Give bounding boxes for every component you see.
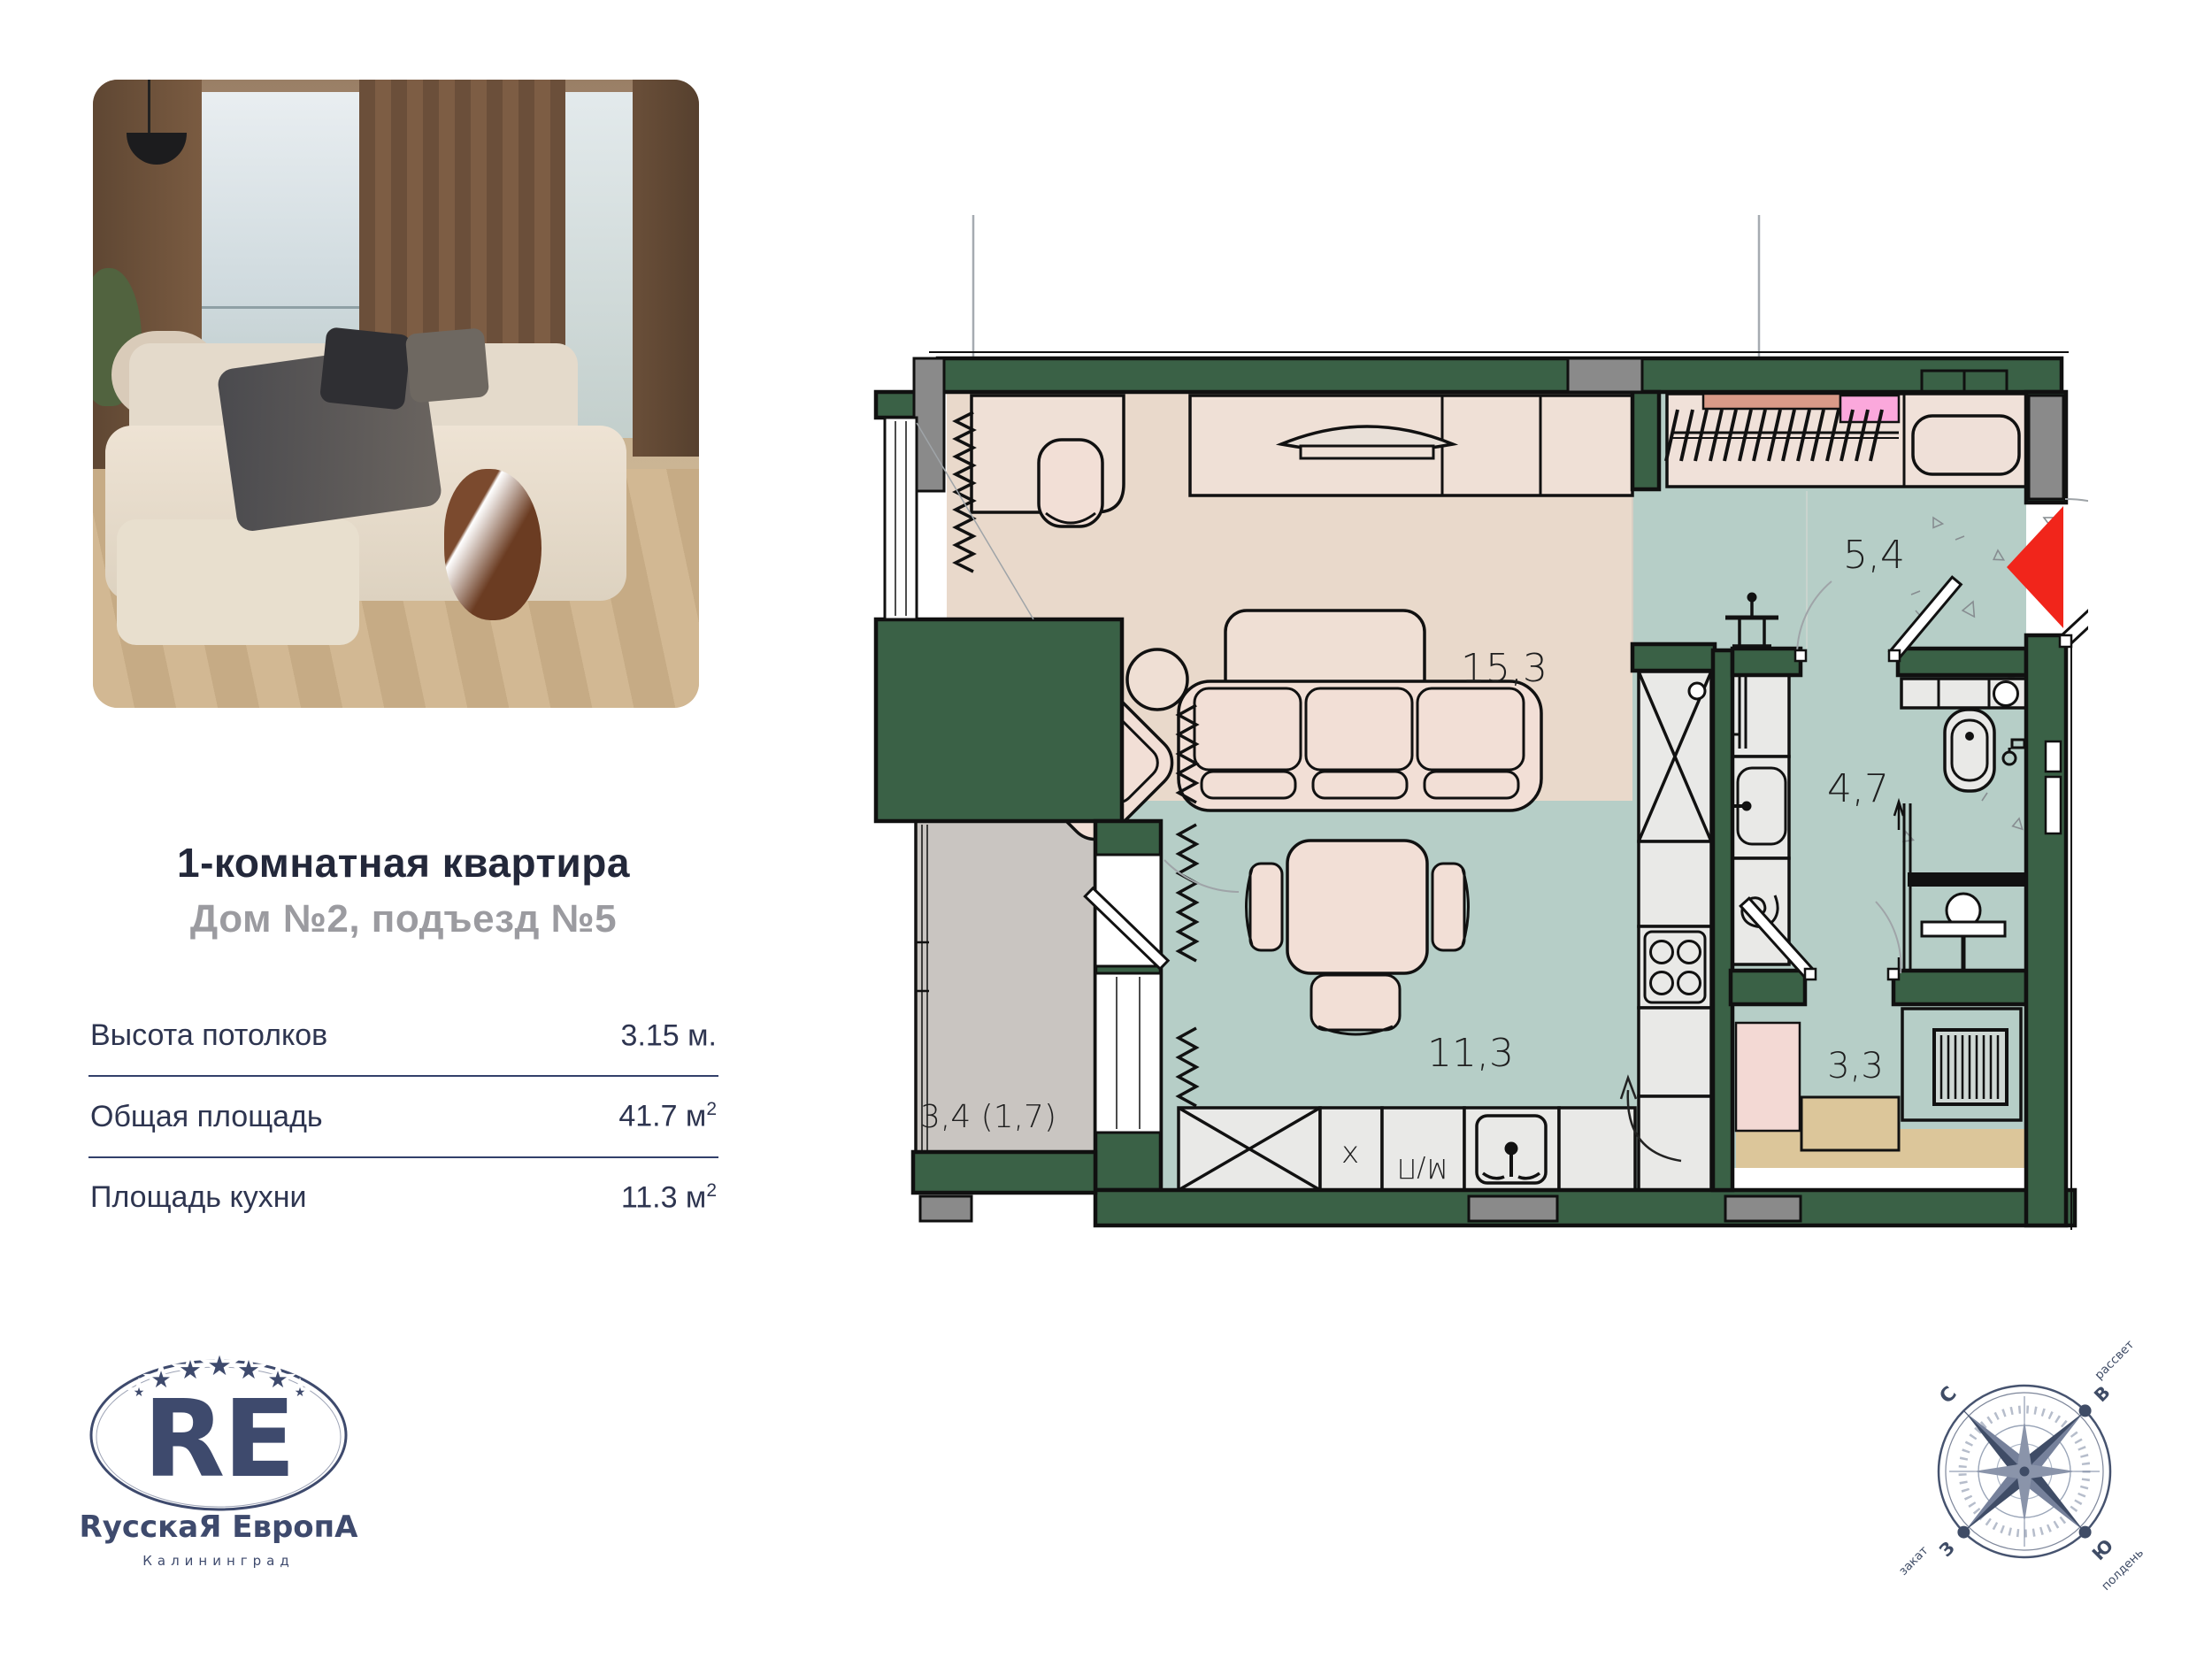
- spec-label: Общая площадь: [90, 1100, 323, 1134]
- page-title: 1-комнатная квартира: [88, 839, 718, 887]
- logo-city: Калининград: [142, 1553, 295, 1569]
- label-bath: 4,7: [1827, 766, 1889, 811]
- label-kitchen: 11,3: [1427, 1031, 1514, 1076]
- star-icon: ★: [295, 1386, 306, 1400]
- label-storage: 3,3: [1827, 1046, 1884, 1087]
- spec-value: 11.3 м2: [621, 1180, 717, 1215]
- compass-north-label: С: [1936, 1383, 1962, 1409]
- side-table: [1127, 649, 1187, 710]
- label-hob: x: [1341, 1135, 1359, 1171]
- spec-label: Высота потолков: [90, 1018, 327, 1053]
- brand-logo: ★ ★ ★ ★ ★ ★ ★ RE RусскаЯ ЕвропА Калининг…: [53, 1314, 398, 1606]
- bath-vanity: [1901, 679, 2026, 708]
- spec-row-kitchen-area: Площадь кухни 11.3 м2: [88, 1156, 718, 1237]
- photo-balcony-rail: [202, 306, 359, 309]
- logo-brand-name: RусскаЯ ЕвропА: [80, 1509, 359, 1545]
- label-appliance: М/П: [1397, 1152, 1449, 1183]
- storage-pink-cabinet: [1736, 1023, 1800, 1131]
- photo-cowhide: [444, 469, 541, 619]
- compass-south-label: Ю: [2088, 1535, 2118, 1565]
- wall-corner-block: [876, 619, 1122, 821]
- entry-bench: [1913, 416, 2019, 474]
- toilet: [1945, 710, 1994, 791]
- compass-east-label: В: [2090, 1381, 2115, 1406]
- label-living: 15,3: [1461, 646, 1548, 691]
- storage-tan-box: [1801, 1097, 1899, 1150]
- floor-plan: 15,3 5,4 4,7 11,3 3,3 3,4 (1,7) x М/П: [867, 204, 2088, 1230]
- photo-pendant-lamp: [148, 80, 150, 136]
- star-icon: ★: [207, 1350, 232, 1382]
- compass-dawn-label: рассвет: [2092, 1338, 2137, 1383]
- flyer-page: { "card": { "title": "1-комнатная кварти…: [0, 0, 2212, 1659]
- bath-partition: [1908, 872, 2026, 887]
- spec-label: Площадь кухни: [90, 1180, 306, 1215]
- label-hall: 5,4: [1843, 533, 1905, 578]
- spec-value: 41.7 м2: [618, 1099, 717, 1133]
- logo-monogram: RE: [143, 1379, 294, 1502]
- wardrobe-shelf-salmon: [1703, 394, 1840, 409]
- photo-curtain-right: [633, 80, 699, 457]
- compass-rose: С В З Ю рассвет закат полдень: [1893, 1318, 2212, 1637]
- spec-row-ceiling: Высота потолков 3.15 м.: [88, 996, 718, 1075]
- label-balcony: 3,4 (1,7): [920, 1099, 1056, 1135]
- wall-right: [2026, 635, 2066, 1225]
- spec-row-total-area: Общая площадь 41.7 м2: [88, 1075, 718, 1156]
- wall-niche-slots: [2046, 741, 2061, 833]
- desk-chair: [1039, 440, 1102, 526]
- wall-top: [938, 358, 2062, 392]
- photo-sofa-chaise: [117, 519, 359, 645]
- apartment-photo: [93, 80, 699, 708]
- photo-pillow-light: [405, 327, 490, 403]
- wall-bottom: [1095, 1190, 2075, 1225]
- compass-sunset-label: закат: [1896, 1543, 1932, 1578]
- compass-west-label: З: [1935, 1537, 1959, 1561]
- photo-pillow-dark: [319, 326, 411, 411]
- sofa: [1179, 681, 1541, 810]
- vanity-sink: [1994, 682, 2018, 706]
- wall-kitchen-bath: [1713, 650, 1732, 1190]
- hall-wardrobe: [1666, 394, 2026, 487]
- spec-value: 3.15 м.: [621, 1018, 717, 1053]
- kitchen-tall-units: [1639, 672, 1711, 1190]
- wall-living-hall-stub: [1632, 392, 1659, 489]
- spec-table: Высота потолков 3.15 м. Общая площадь 41…: [88, 996, 718, 1237]
- page-subtitle: Дом №2, подъезд №5: [88, 897, 718, 941]
- dining-table: [1287, 841, 1427, 973]
